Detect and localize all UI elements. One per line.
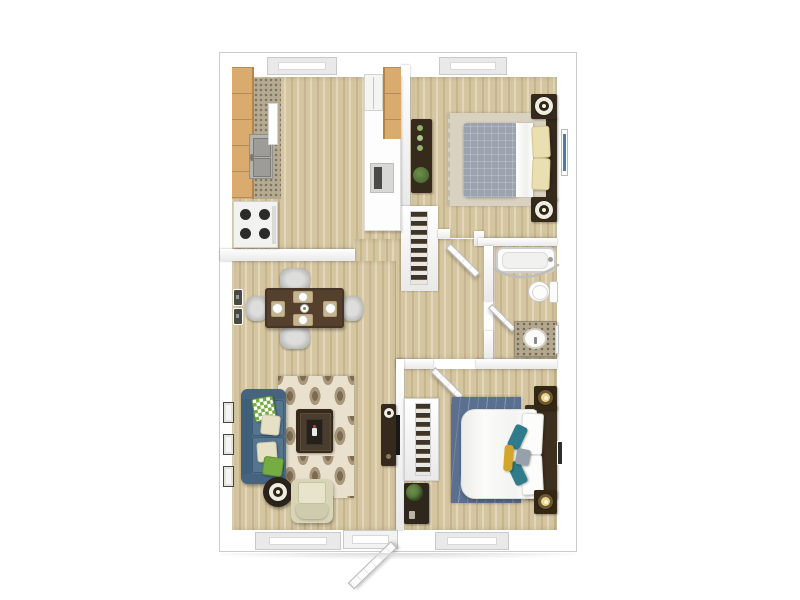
- oven-door: [374, 167, 382, 189]
- bedroom1-south-wall-stub: [438, 229, 450, 239]
- lamp-finial: [542, 208, 546, 212]
- sofa-backrest: [241, 389, 252, 484]
- bedroom1-nightstand-top: [531, 94, 557, 119]
- dinner-plate: [325, 303, 336, 314]
- window-sill: [269, 537, 328, 545]
- burner: [259, 228, 270, 239]
- glowing-lamp-icon: [538, 494, 553, 509]
- wall-switch-panel: [233, 289, 243, 306]
- vanity-sink: [523, 328, 547, 349]
- living-room-window: [255, 532, 341, 550]
- dresser-decor-dot: [417, 135, 423, 141]
- burner: [259, 209, 270, 220]
- bedroom1-closet-shelves: [410, 211, 428, 285]
- armchair-back-cushion: [296, 504, 328, 519]
- lamp-shade-center: [387, 411, 391, 415]
- window-pane: [226, 469, 231, 484]
- round-side-table: [263, 477, 293, 507]
- console-lamp-icon: [384, 408, 394, 418]
- bedroom1-pillow: [531, 158, 550, 191]
- window-pane: [226, 405, 231, 420]
- bedroom1-bed-sheet-fold: [516, 123, 533, 197]
- sink-basin-bottom: [253, 158, 271, 177]
- threshold-sill: [352, 535, 389, 544]
- burner: [240, 228, 251, 239]
- window-sill: [447, 537, 497, 545]
- dinner-plate: [298, 315, 308, 325]
- bedroom1-bed-blanket: [463, 123, 517, 197]
- table-centerpiece: [300, 304, 309, 313]
- sink-faucet: [250, 154, 254, 161]
- switch-knob: [236, 314, 239, 318]
- decor-flower: [313, 425, 316, 428]
- yellow-lumbar-pillow: [503, 445, 514, 472]
- coffee-table: [296, 409, 333, 453]
- potted-plant-icon: [413, 167, 429, 183]
- floorplan: [219, 52, 577, 552]
- bedroom2-window: [435, 532, 509, 550]
- floorplan-canvas: [0, 0, 800, 600]
- stove-control-strip: [272, 206, 276, 244]
- dinner-plate: [298, 292, 308, 302]
- bedroom1-window: [439, 57, 507, 75]
- bathroom-north-wall: [478, 238, 557, 246]
- bathroom-vanity: [514, 321, 557, 357]
- tray-center-decor: [306, 419, 323, 445]
- burner: [240, 209, 251, 220]
- kitchen-upper-cabinet-right: [383, 67, 401, 139]
- armchair: [291, 479, 333, 523]
- centerpiece-decor: [303, 307, 306, 310]
- armchair-seat: [298, 482, 326, 504]
- dresser-decor-dot: [417, 125, 423, 131]
- dining-chair-east: [341, 296, 363, 321]
- dresser-decor-dot: [417, 145, 423, 151]
- potted-plant-icon: [406, 484, 423, 501]
- glowing-lamp-icon: [538, 390, 553, 405]
- cream-throw-pillow: [260, 414, 281, 436]
- table-lamp-icon: [269, 483, 287, 501]
- lamp-finial: [276, 490, 280, 494]
- green-throw-pillow: [262, 456, 284, 478]
- table-lamp-icon: [535, 201, 553, 219]
- living-side-window: [223, 466, 234, 487]
- gray-accent-pillow: [515, 448, 532, 466]
- bedroom1-nightstand-bottom: [531, 197, 557, 222]
- refrigerator: [364, 74, 383, 111]
- bedroom2-nightstand-top: [534, 386, 557, 410]
- tv-screen: [563, 134, 566, 171]
- tv-console: [381, 404, 396, 466]
- living-side-window: [223, 402, 234, 423]
- sink-faucet: [534, 337, 537, 344]
- table-lamp-icon: [535, 97, 553, 115]
- window-sill: [450, 62, 496, 70]
- dinner-plate: [272, 303, 283, 314]
- window-pane: [226, 437, 231, 452]
- bedroom1-pillow: [531, 126, 551, 159]
- kitchen-bedroom1-divider-wall: [401, 65, 410, 206]
- toilet-seat: [532, 285, 548, 300]
- toilet-bowl: [528, 281, 550, 302]
- kitchen-window: [267, 57, 337, 75]
- lamp-finial: [542, 104, 546, 108]
- living-side-window: [223, 434, 234, 455]
- bedroom2-north-wall-right: [476, 359, 557, 369]
- bedroom2-nightstand-bottom: [534, 490, 557, 514]
- console-decor-dot: [386, 454, 391, 459]
- kitchen-upper-cabinets: [232, 67, 254, 199]
- plan-drop-shadow: [221, 553, 575, 559]
- kitchen-south-wall: [220, 249, 355, 261]
- fridge-door-split: [373, 77, 374, 109]
- bathroom-mirror: [555, 325, 559, 354]
- toilet-tank: [549, 281, 558, 303]
- stove: [233, 201, 278, 248]
- decor-vase: [312, 428, 317, 436]
- lamp-finial: [544, 500, 548, 504]
- dining-chair-south: [280, 326, 310, 349]
- wall-oven: [370, 163, 394, 193]
- bedroom2-closet-shoes: [415, 403, 431, 476]
- bathroom-west-wall-lower: [484, 331, 493, 359]
- bedroom2-wall-art: [557, 441, 563, 465]
- kitchen-tall-panel: [268, 103, 278, 145]
- window-sill: [278, 62, 326, 70]
- bedroom1-wall-tv: [561, 129, 568, 176]
- wall-switch-panel: [233, 308, 243, 325]
- lamp-finial: [544, 396, 548, 400]
- switch-knob: [236, 295, 239, 299]
- dresser-decor: [409, 511, 415, 519]
- living-wall-tv: [396, 415, 400, 455]
